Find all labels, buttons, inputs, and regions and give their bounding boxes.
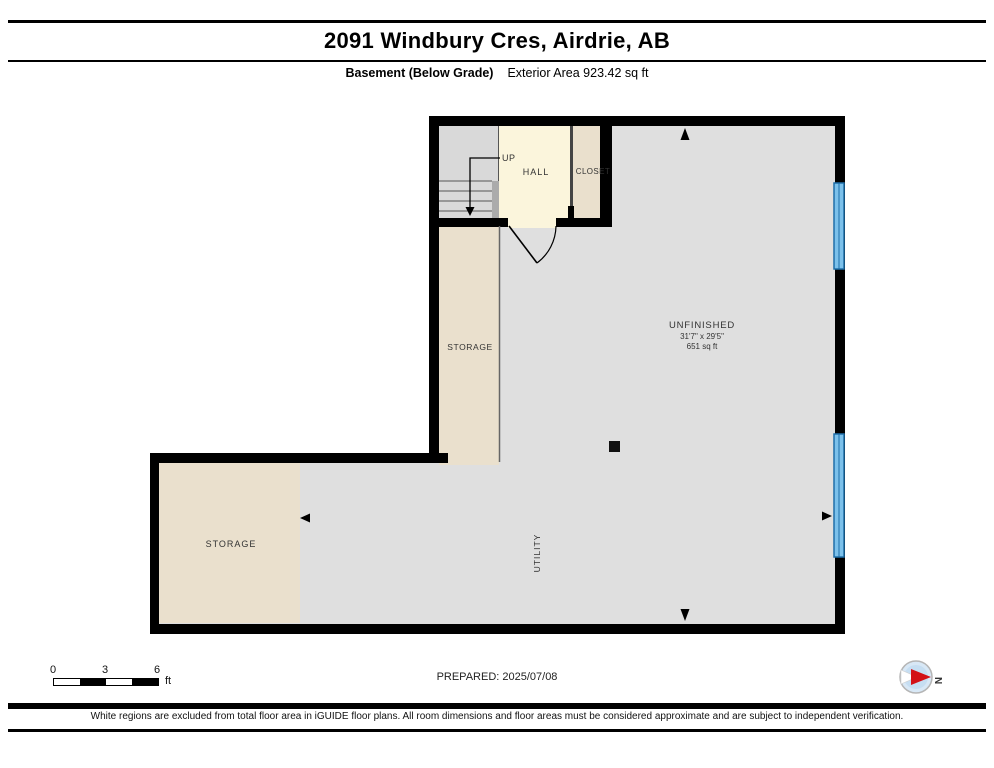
unfinished-area: 651 sq ft: [687, 342, 718, 351]
storage-lower-label: STORAGE: [206, 539, 257, 549]
unfinished-dimensions: 31'7" x 29'5": [680, 332, 724, 341]
unfinished-label: UNFINISHED: [669, 320, 735, 331]
support-post: [609, 441, 620, 452]
wall-top: [429, 116, 845, 126]
disclaimer-text: White regions are excluded from total fl…: [0, 711, 994, 722]
prepared-date-label: PREPARED: 2025/07/08: [0, 671, 994, 683]
footer-bottom-line: [8, 729, 986, 732]
hall-label: HALL: [523, 167, 550, 177]
wall-bottom: [150, 624, 845, 634]
closet-label: CLOSET: [576, 167, 610, 176]
wall-interior-left: [429, 218, 508, 227]
storage-upper-label: STORAGE: [447, 342, 493, 352]
floor-plan-svg: UP HALL CLOSET STORAGE STORAGE UTILITY U…: [0, 0, 994, 768]
floorplan-page: 2091 Windbury Cres, Airdrie, AB Basement…: [0, 0, 994, 768]
wall-left-upper: [429, 116, 439, 463]
wall-hall-closet-divider: [570, 126, 573, 218]
up-label: UP: [502, 153, 516, 163]
wall-step: [150, 453, 448, 463]
hall-door-threshold: [508, 218, 556, 228]
window-upper: [834, 183, 844, 269]
wall-left-lower: [150, 453, 159, 634]
wall-divider-stub: [568, 206, 574, 218]
window-lower: [834, 434, 844, 557]
utility-label: UTILITY: [532, 534, 542, 573]
footer-top-line: [8, 703, 986, 709]
